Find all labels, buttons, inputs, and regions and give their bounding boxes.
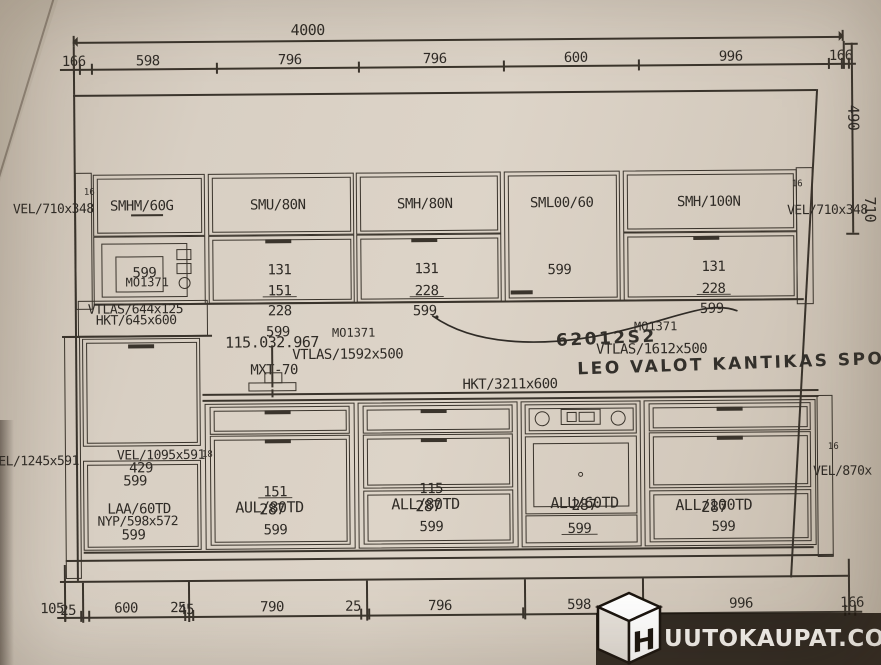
- photo-of-kitchen-plan: 4000 166 598 796 796 600 996 166 490 710: [0, 0, 881, 665]
- wall-top: [73, 89, 816, 96]
- handle-mark: [717, 436, 743, 440]
- label-mo-mid: MO1371: [332, 327, 375, 339]
- num: 131: [414, 262, 438, 276]
- tick: [79, 64, 81, 75]
- num-overlap: 287: [415, 499, 441, 514]
- handle-mark: [421, 438, 447, 442]
- oven-display-detail: [567, 412, 577, 422]
- arrow-right-icon: [839, 31, 849, 41]
- tick: [358, 62, 360, 73]
- num: 599: [700, 302, 724, 316]
- num: 599: [547, 263, 571, 277]
- all100-mid-drawer: [649, 431, 811, 488]
- tick: [522, 607, 524, 618]
- dim-line-total: [73, 36, 843, 44]
- microwave-button-icon: [176, 249, 191, 260]
- tick: [503, 60, 505, 71]
- dim-bottom: 996: [729, 597, 753, 611]
- handle-mark: [265, 439, 291, 443]
- dim-top-seg: 600: [564, 51, 588, 65]
- floor-line: [60, 575, 850, 583]
- num: 599: [122, 528, 146, 542]
- num: 599: [263, 523, 287, 537]
- ext-line: [843, 41, 845, 69]
- num: 599: [413, 304, 437, 318]
- label-right-upper-panel: VEL/710x348: [787, 204, 868, 218]
- tick: [846, 233, 859, 235]
- label-left-tall-panel: VEL/1245x591: [0, 455, 79, 469]
- kitchen-elevation-drawing: 4000 166 598 796 796 600 996 166 490 710: [0, 0, 881, 665]
- faucet-valve-icon: [264, 372, 282, 383]
- oven-dot: [578, 472, 583, 477]
- handle-mark: [511, 290, 533, 294]
- label-right-lower-panel: VEL/870x: [813, 465, 872, 478]
- dim-top-seg: 796: [423, 52, 447, 66]
- tick: [91, 64, 93, 75]
- num-overlap: 287: [571, 498, 597, 513]
- num: 228: [268, 304, 292, 318]
- handle-mark: [411, 238, 437, 242]
- dim-top-seg: 796: [278, 53, 302, 67]
- handle-mark: [265, 239, 291, 243]
- watermark-text: UUTOKAUPAT.COM: [664, 626, 881, 652]
- dim-top-seg: 598: [136, 54, 160, 68]
- handle-mark: [131, 214, 163, 216]
- oven-knob-icon: [535, 411, 550, 426]
- dim-total-width: 4000: [291, 23, 325, 38]
- num: 131: [267, 263, 291, 277]
- handle-mark: [693, 236, 719, 240]
- edge-marker: 16: [828, 443, 839, 452]
- num: 599: [419, 520, 443, 534]
- edge-marker: 16: [792, 180, 803, 189]
- dim-bottom: 166: [840, 596, 864, 610]
- tick: [638, 59, 640, 70]
- label-left-upper-panel: VEL/710x348: [13, 203, 94, 217]
- tick: [73, 36, 75, 47]
- label-hood-hkt: HKT/645x600: [96, 314, 177, 328]
- num: 599: [711, 520, 735, 534]
- huutokaupat-cube-logo: H: [594, 591, 664, 665]
- handle-mark: [717, 407, 743, 411]
- microwave-knob-icon: [179, 277, 191, 289]
- handle-mark: [421, 409, 447, 413]
- microwave-button-icon: [176, 263, 191, 274]
- num-overlap: 287: [701, 500, 727, 515]
- dim-bottom: 598: [567, 598, 591, 612]
- dim-right-height: 490: [845, 105, 860, 131]
- tick: [842, 30, 844, 41]
- num-overlap: 287: [259, 502, 285, 517]
- dim-bottom: 790: [260, 600, 284, 614]
- oven-display-detail: [579, 412, 595, 422]
- oven-knob-icon: [611, 411, 626, 426]
- dim-bottom: 600: [114, 601, 138, 615]
- dim-line-segments: [60, 63, 856, 71]
- label-smh100-code: SMH/100N: [677, 195, 741, 209]
- cabinet-sml00-60: [504, 171, 621, 302]
- dim-top-seg: 996: [719, 50, 743, 64]
- tick: [88, 611, 90, 622]
- tall-cabinet-door: [82, 338, 201, 447]
- dim-bottom: 796: [428, 599, 452, 613]
- label-vtlas-left: VTLAS/1592x500: [292, 347, 403, 362]
- base-line: [66, 554, 834, 562]
- handle-mark: [265, 410, 291, 414]
- tick: [368, 609, 370, 620]
- dim-bottom-overlap: 45: [178, 603, 194, 617]
- label-smu-code: SMU/80N: [250, 198, 306, 212]
- label-hkt-worktop: HKT/3211x600: [462, 377, 557, 392]
- tick: [216, 63, 218, 74]
- tick: [845, 43, 858, 45]
- tick: [848, 58, 850, 69]
- label-sml-code: SML00/60: [530, 196, 594, 210]
- tick: [80, 611, 82, 622]
- label-smh80-code: SMH/80N: [397, 197, 453, 211]
- num: 131: [701, 260, 725, 274]
- handwritten-code: 62012S2: [556, 329, 657, 350]
- logo-letter: H: [632, 622, 655, 660]
- label-mw-code: MO1371: [126, 276, 169, 288]
- dim-bottom-overlap: 25: [60, 604, 76, 618]
- label-smhm-code: SMHM/60G: [110, 199, 174, 213]
- handle-mark: [128, 344, 154, 348]
- tick: [828, 58, 830, 69]
- dim-bottom: 25: [345, 600, 361, 614]
